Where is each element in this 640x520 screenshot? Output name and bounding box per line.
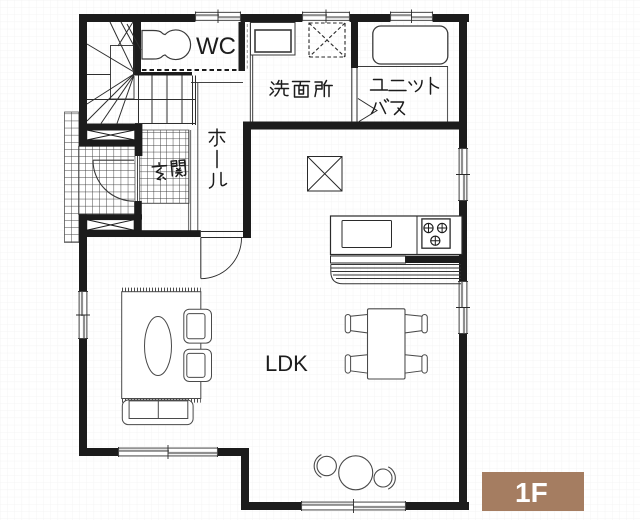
svg-text:WC: WC — [196, 33, 236, 60]
svg-text:1F: 1F — [515, 477, 548, 508]
svg-text:LDK: LDK — [265, 351, 308, 376]
